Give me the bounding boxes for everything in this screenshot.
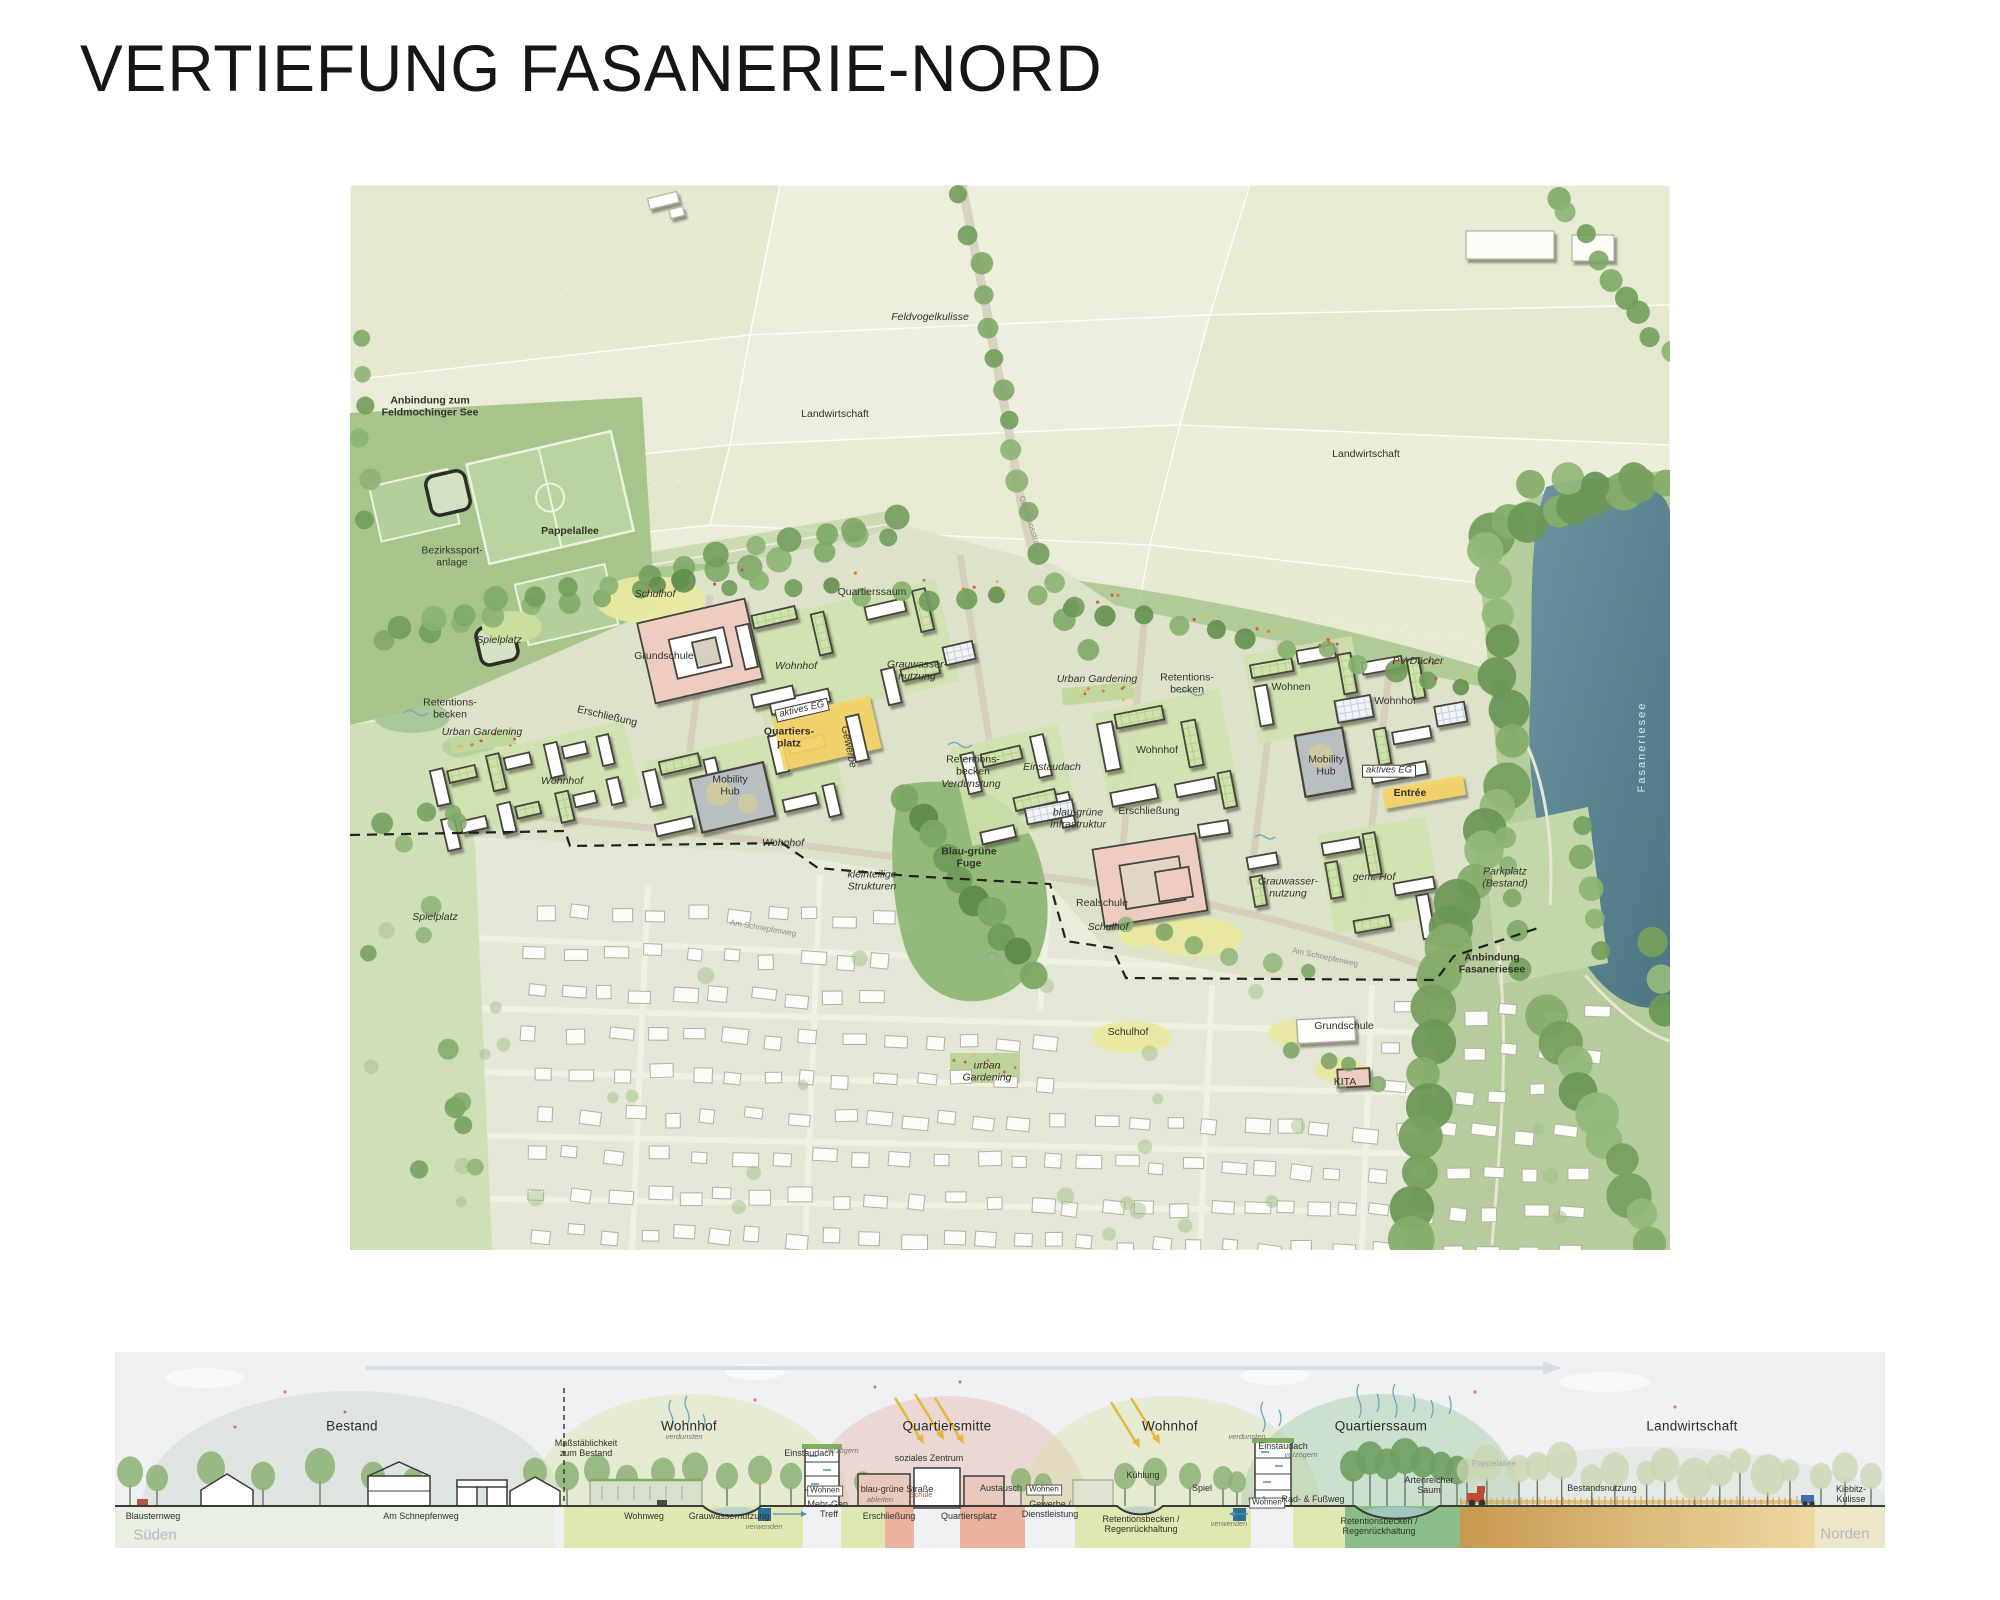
rowhouses-green bbox=[590, 1480, 702, 1506]
tower2 bbox=[1252, 1438, 1294, 1506]
page: { "page": { "title": "VERTIEFUNG FASANER… bbox=[0, 0, 2000, 1600]
site-plan-map: Anbindung zum Feldmochinger SeeFeldvogel… bbox=[350, 185, 1670, 1250]
underground-bands bbox=[115, 1506, 1885, 1548]
mobility-hub-east bbox=[1295, 727, 1353, 796]
tower1 bbox=[802, 1444, 842, 1506]
page-title: VERTIEFUNG FASANERIE-NORD bbox=[80, 30, 1103, 106]
section-diagram: BestandWohnhofQuartiersmitteWohnhofQuart… bbox=[115, 1352, 1885, 1548]
section-graphic bbox=[115, 1352, 1885, 1548]
site-plan-graphic bbox=[350, 185, 1670, 1250]
